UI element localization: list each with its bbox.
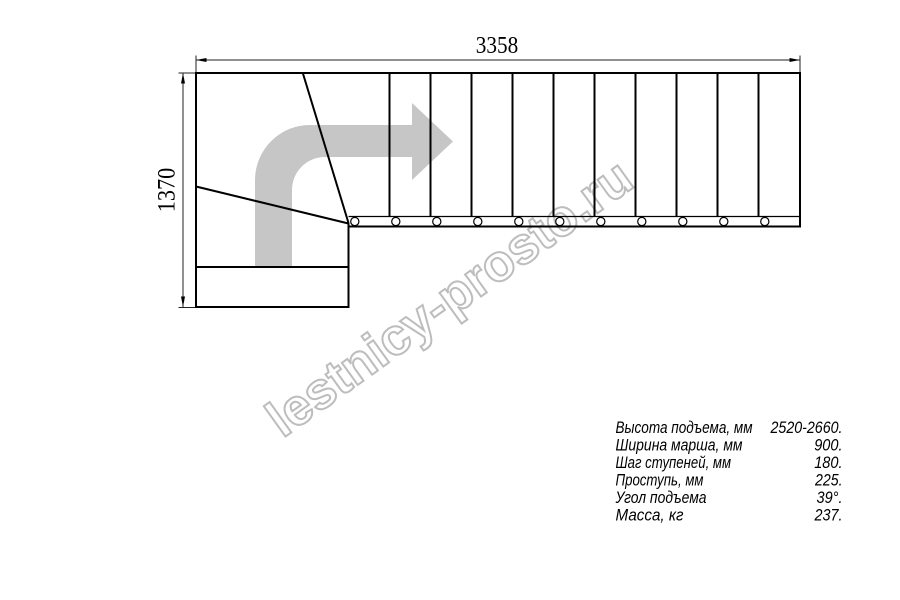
- svg-text:Шаг ступеней, мм: Шаг ступеней, мм: [616, 453, 732, 472]
- svg-text:3358: 3358: [476, 33, 519, 59]
- svg-text:Проступь, мм: Проступь, мм: [616, 471, 704, 490]
- svg-text:lestnicy-prosto.ru: lestnicy-prosto.ru: [255, 147, 642, 447]
- svg-text:2520-2660.: 2520-2660.: [770, 418, 843, 437]
- svg-text:Угол подъема: Угол подъема: [615, 488, 707, 507]
- svg-text:Ширина марша, мм: Ширина марша, мм: [616, 436, 743, 455]
- svg-text:39°.: 39°.: [817, 488, 843, 507]
- svg-text:Масса, кг: Масса, кг: [616, 506, 684, 525]
- svg-text:237.: 237.: [814, 506, 843, 525]
- svg-text:900.: 900.: [814, 436, 842, 455]
- svg-text:1370: 1370: [154, 168, 181, 213]
- svg-text:225.: 225.: [814, 471, 842, 490]
- svg-text:180.: 180.: [814, 453, 842, 472]
- svg-text:Высота подъема, мм: Высота подъема, мм: [616, 418, 753, 437]
